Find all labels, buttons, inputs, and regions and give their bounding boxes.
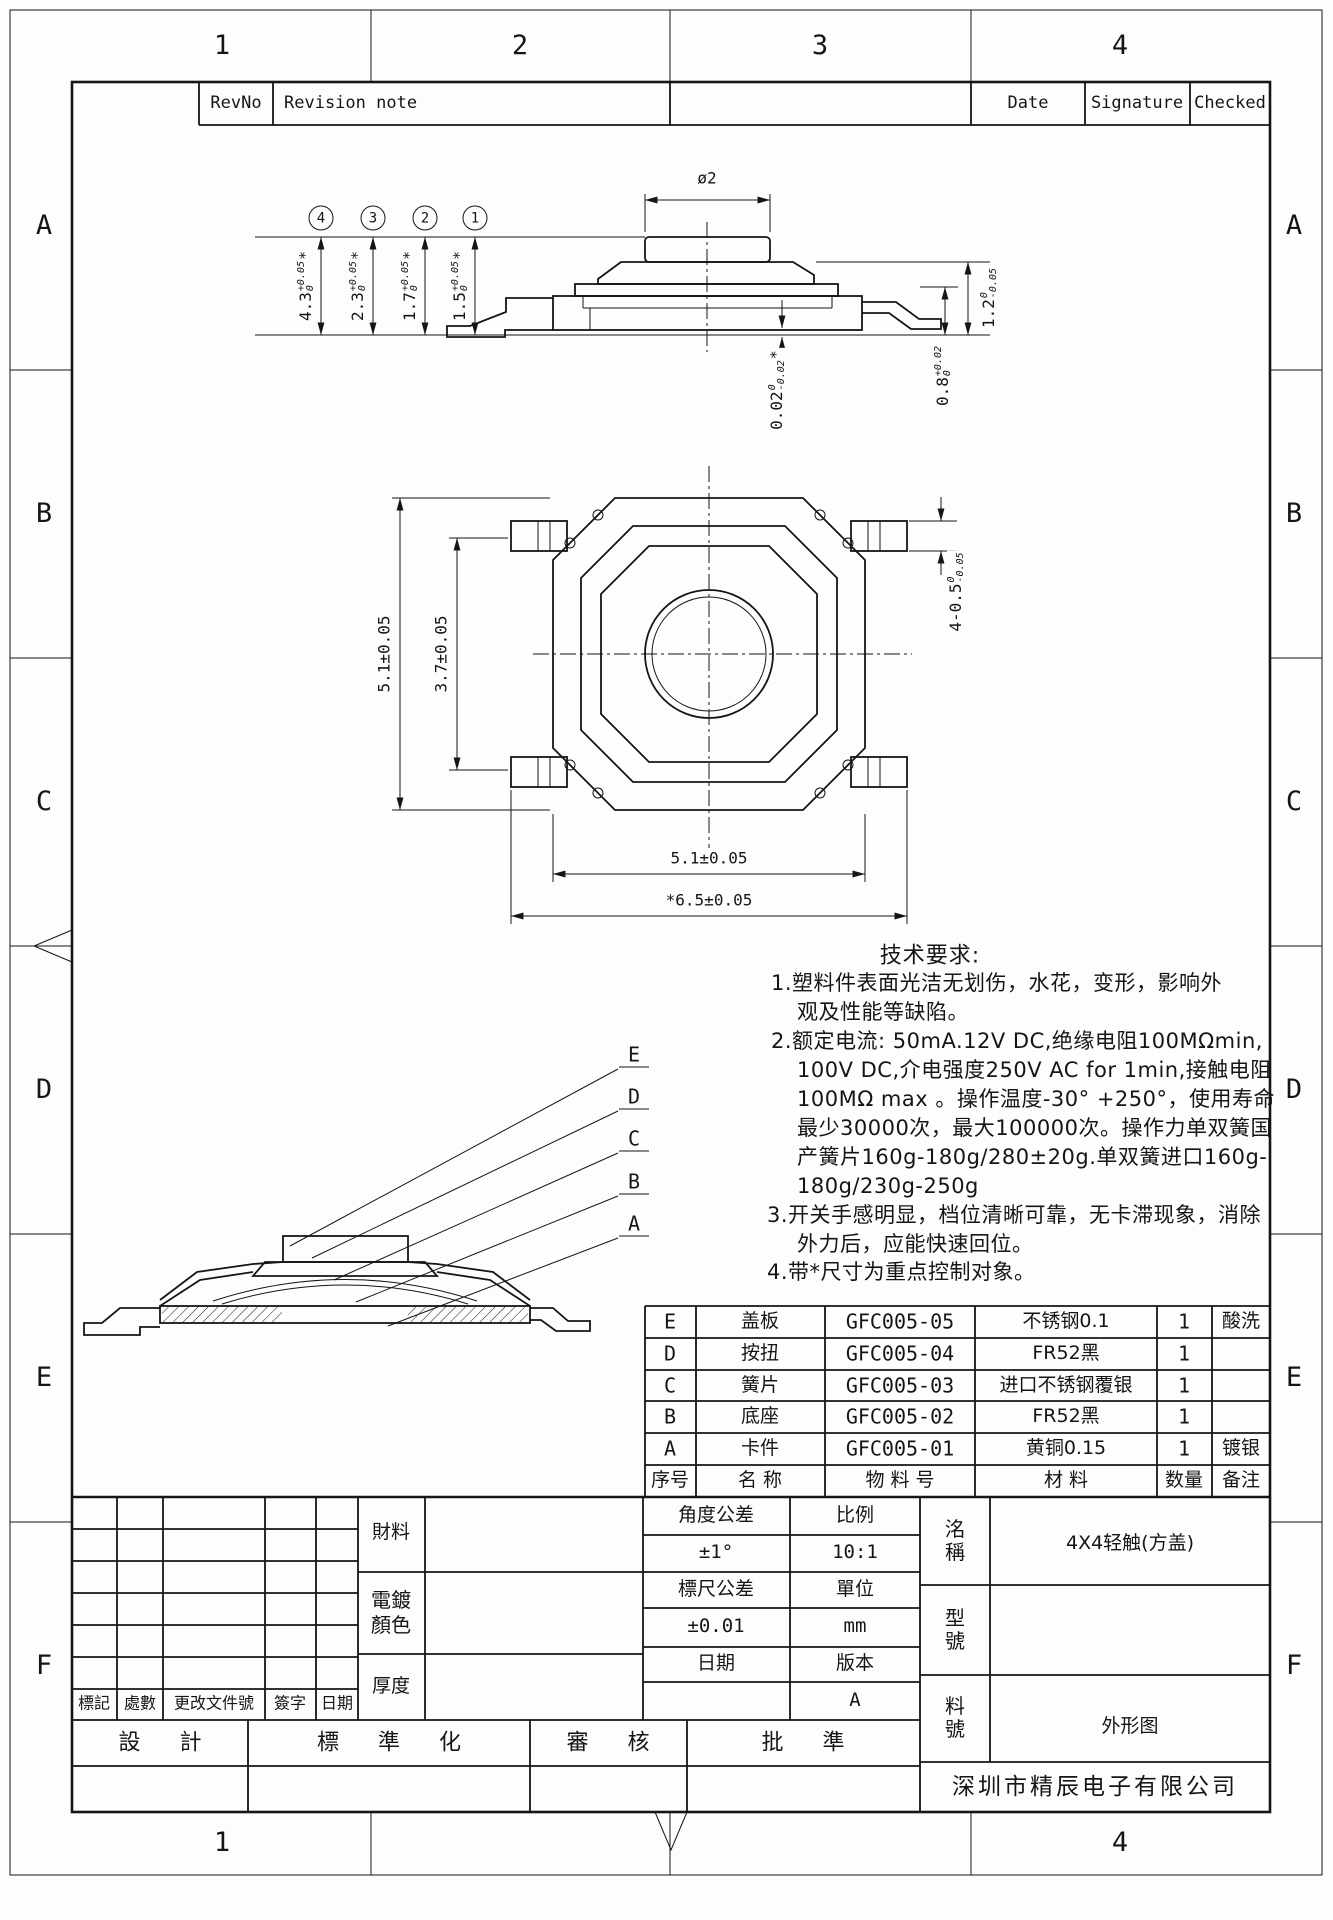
tech-req-line: 4.带*尺寸为重点控制对象。 xyxy=(767,1261,1036,1283)
bom-part-number: GFC005-02 xyxy=(846,1407,954,1428)
tech-req-line: 观及性能等缺陷。 xyxy=(797,1001,969,1023)
angle-tolerance-label: 角度公差 xyxy=(678,1506,754,1526)
zone-row-d-left: D xyxy=(36,1076,52,1104)
zone-row-c-left: C xyxy=(36,788,52,816)
dim-height-variant-2: 1.7 +0.050 * xyxy=(401,249,419,323)
bom-part-number: GFC005-05 xyxy=(846,1312,954,1333)
dim-body-height: 1.2 0-0.05 xyxy=(980,266,998,330)
zone-col-3-top: 3 xyxy=(812,32,828,60)
bom-part-name: 按扭 xyxy=(741,1344,779,1364)
model-label: 型號 xyxy=(941,1607,969,1653)
tech-req-line: 外力后，应能快速回位。 xyxy=(797,1233,1034,1255)
revision-no-header: RevNo xyxy=(210,95,261,113)
part-label-d: D xyxy=(619,1087,649,1110)
bom-note: 酸洗 xyxy=(1222,1312,1260,1332)
zone-row-c-right: C xyxy=(1286,788,1302,816)
tech-req-line: 最少30000次，最大100000次。操作力单双簧国 xyxy=(797,1117,1272,1139)
zone-col-2-top: 2 xyxy=(512,32,528,60)
tech-req-line: 100V DC,介电强度250V AC for 1min,接触电阻 xyxy=(797,1059,1272,1081)
tech-req-title: 技术要求: xyxy=(880,944,980,967)
dim-plan-width: 5.1±0.05 xyxy=(668,851,749,868)
revision-checked-header: Checked xyxy=(1194,95,1266,113)
zone-row-d-right: D xyxy=(1286,1076,1302,1104)
unit-value: mm xyxy=(844,1617,867,1637)
product-name-label: 洺稱 xyxy=(941,1518,969,1564)
bom-part-number: GFC005-03 xyxy=(846,1376,954,1397)
bom-material: 进口不锈钢覆银 xyxy=(999,1376,1132,1396)
bom-item-letter: D xyxy=(664,1344,676,1365)
tech-req-line: 100MΩ max 。操作温度-30° +250°，使用寿命 xyxy=(797,1088,1275,1110)
tech-req-line: 180g/230g-250g xyxy=(797,1175,979,1197)
zone-row-a-right: A xyxy=(1286,212,1302,240)
bom-qty: 1 xyxy=(1178,1407,1190,1428)
part-label-b: B xyxy=(619,1172,649,1195)
thickness-label: 厚度 xyxy=(372,1677,410,1697)
bom-qty: 1 xyxy=(1178,1439,1190,1460)
bom-item-letter: A xyxy=(664,1439,676,1460)
zone-row-e-right: E xyxy=(1286,1364,1302,1392)
dim-height-variant-1: 1.5 +0.050 * xyxy=(451,249,469,323)
zone-row-a-left: A xyxy=(36,212,52,240)
drawing-type-value: 外形图 xyxy=(1101,1717,1158,1737)
variant-ref-4: 4 xyxy=(309,206,334,231)
change-doc-label: 更改文件號 xyxy=(174,1696,254,1713)
dim-plan-outer-width: *6.5±0.05 xyxy=(664,893,755,910)
dim-coplanarity: 0.02 0-0.02 * xyxy=(768,348,786,432)
material-label: 財料 xyxy=(372,1523,410,1543)
bom-header-qty: 数量 xyxy=(1165,1471,1203,1491)
zone-row-f-left: F xyxy=(36,1652,52,1680)
tech-req-line: 3.开关手感明显，档位清晰可靠，无卡滞现象，消除 xyxy=(767,1204,1261,1226)
variant-ref-2: 2 xyxy=(413,206,438,231)
bom-material: FR52黑 xyxy=(1032,1407,1099,1427)
bom-qty: 1 xyxy=(1178,1344,1190,1365)
date2-label: 日期 xyxy=(321,1696,353,1713)
tech-req-line: 2.额定电流: 50mA.12V DC,绝缘电阻100MΩmin, xyxy=(771,1030,1263,1052)
bom-header-material: 材 料 xyxy=(1044,1471,1088,1491)
bom-item-letter: B xyxy=(664,1407,676,1428)
dim-height-variant-4: 4.3 +0.050 * xyxy=(297,249,315,323)
dim-tab-thickness: 4-0.5 0-0.05 xyxy=(947,550,965,633)
part-label-a: A xyxy=(619,1214,649,1237)
bom-part-number: GFC005-04 xyxy=(846,1344,954,1365)
company-name: 深圳市精辰电子有限公司 xyxy=(952,1775,1238,1799)
zone-row-e-left: E xyxy=(36,1364,52,1392)
part-no-label: 料號 xyxy=(941,1695,969,1741)
bom-part-number: GFC005-01 xyxy=(846,1439,954,1460)
part-label-e: E xyxy=(619,1045,649,1068)
dim-plan-height: 5.1±0.05 xyxy=(377,613,394,694)
zone-col-1-top: 1 xyxy=(214,32,230,60)
part-label-c: C xyxy=(619,1129,649,1152)
plating-color-label: 電鍍顏色 xyxy=(363,1588,419,1638)
bom-qty: 1 xyxy=(1178,1376,1190,1397)
design-label: 設 計 xyxy=(103,1731,218,1754)
bom-part-name: 底座 xyxy=(741,1407,779,1427)
bom-material: 不锈钢0.1 xyxy=(1022,1312,1109,1332)
bom-header-note: 备注 xyxy=(1222,1471,1260,1491)
scale-value: 10:1 xyxy=(832,1543,878,1563)
review-label: 審 核 xyxy=(551,1731,666,1754)
sign-label: 簽字 xyxy=(274,1696,306,1713)
zone-row-b-left: B xyxy=(36,500,52,528)
zone-row-b-right: B xyxy=(1286,500,1302,528)
bom-part-name: 卡件 xyxy=(741,1439,779,1459)
zone-col-4-top: 4 xyxy=(1112,32,1128,60)
unit-label: 單位 xyxy=(836,1580,874,1600)
revision-note-header: Revision note xyxy=(284,95,417,113)
variant-ref-1: 1 xyxy=(463,206,488,231)
bom-qty: 1 xyxy=(1178,1312,1190,1333)
revision-signature-header: Signature xyxy=(1091,95,1183,113)
zone-col-1-bottom: 1 xyxy=(214,1829,230,1857)
bom-item-letter: E xyxy=(664,1312,676,1333)
dim-terminal-height: 0.8 +0.020 xyxy=(934,344,952,408)
zone-row-f-right: F xyxy=(1286,1652,1302,1680)
dim-tolerance-label: 標尺公差 xyxy=(678,1580,754,1600)
drawing-linework xyxy=(0,0,1333,1920)
bom-part-name: 盖板 xyxy=(741,1312,779,1332)
date-label: 日期 xyxy=(697,1654,735,1674)
bom-header-index: 序号 xyxy=(651,1471,689,1491)
standardize-label: 標 準 化 xyxy=(301,1731,477,1754)
bom-item-letter: C xyxy=(664,1376,676,1397)
bom-part-name: 簧片 xyxy=(741,1376,779,1396)
bom-material: FR52黑 xyxy=(1032,1344,1099,1364)
variant-ref-3: 3 xyxy=(361,206,386,231)
approve-label: 批 準 xyxy=(746,1731,861,1754)
revision-date-header: Date xyxy=(1008,95,1049,113)
tech-req-line: 产簧片160g-180g/280±20g.单双簧进口160g- xyxy=(797,1146,1267,1168)
version-label: 版本 xyxy=(836,1654,874,1674)
dim-height-variant-3: 2.3 +0.050 * xyxy=(349,249,367,323)
engineering-drawing-sheet: 1 2 3 4 1 4 A B C D E F A B C D E F RevN… xyxy=(0,0,1333,1920)
bom-header-part-number: 物 料 号 xyxy=(865,1471,934,1491)
bom-header-name: 名 称 xyxy=(738,1471,782,1491)
zone-col-4-bottom: 4 xyxy=(1112,1829,1128,1857)
scale-label: 比例 xyxy=(836,1506,874,1526)
dim-lead-span: 3.7±0.05 xyxy=(434,613,451,694)
dim-stem-diameter: ø2 xyxy=(695,171,718,188)
angle-tolerance-value: ±1° xyxy=(699,1543,733,1563)
tech-req-line: 1.塑料件表面光洁无划伤，水花，变形，影响外 xyxy=(771,972,1222,994)
dim-tolerance-value: ±0.01 xyxy=(687,1617,744,1637)
version-value: A xyxy=(849,1691,860,1711)
count-label: 處數 xyxy=(124,1696,156,1713)
product-name-value: 4X4轻触(方盖) xyxy=(1066,1534,1194,1554)
bom-material: 黄铜0.15 xyxy=(1026,1439,1106,1459)
mark-label: 標記 xyxy=(78,1696,110,1713)
bom-note: 镀银 xyxy=(1222,1439,1260,1459)
